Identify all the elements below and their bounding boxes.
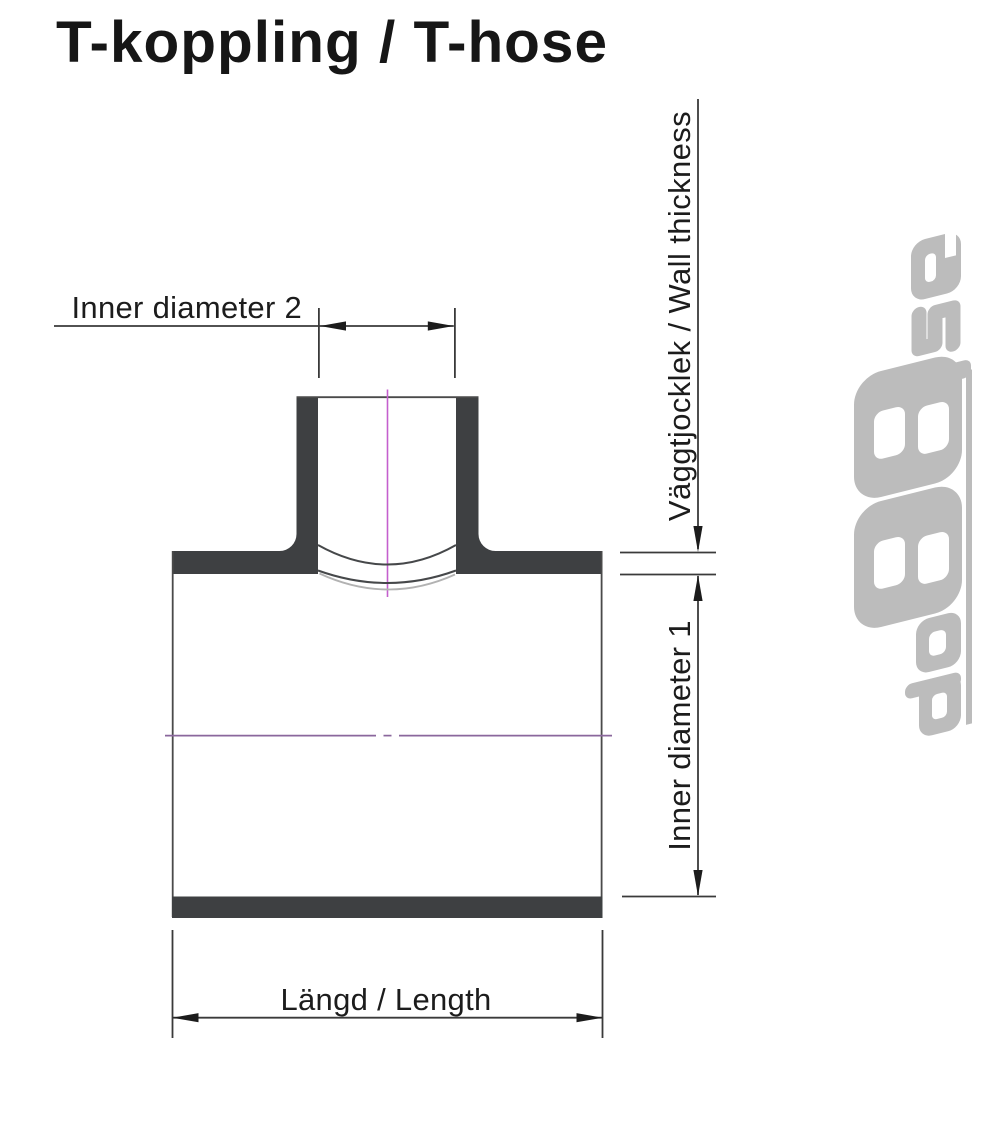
svg-text:T-koppling / T-hose: T-koppling / T-hose [56, 10, 608, 75]
svg-text:Inner diameter 1: Inner diameter 1 [662, 620, 697, 851]
svg-text:Väggtjocklek / Wall thickness: Väggtjocklek / Wall thickness [662, 111, 697, 521]
svg-text:Längd / Length: Längd / Length [280, 982, 491, 1017]
svg-text:Inner diameter 2: Inner diameter 2 [72, 290, 303, 325]
